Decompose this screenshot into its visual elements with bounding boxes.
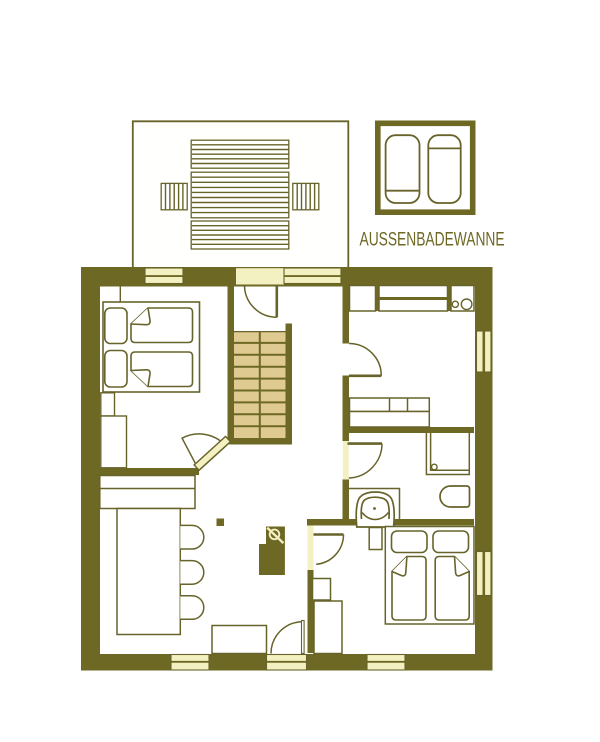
svg-text:AUSSENBADEWANNE: AUSSENBADEWANNE [360, 228, 505, 250]
